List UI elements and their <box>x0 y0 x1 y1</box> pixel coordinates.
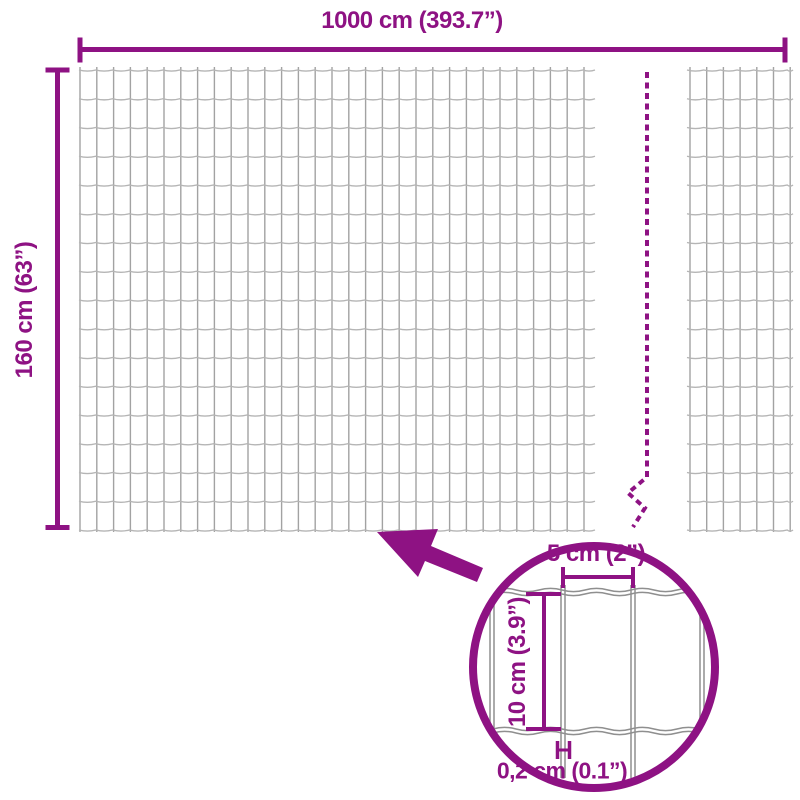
overall-width-label: 1000 cm (393.7”) <box>321 9 502 33</box>
overall-height-label: 160 cm (63”) <box>13 242 37 379</box>
main-mesh-panel <box>79 67 595 532</box>
detail-mesh-height-label: 10 cm (3.9”) <box>506 597 530 727</box>
width-dimension-line <box>80 38 785 63</box>
break-dashed-line <box>628 72 647 527</box>
detail-mesh-width-label: 5 cm (2”) <box>547 542 645 566</box>
right-mesh-panel <box>687 67 793 532</box>
detail-arrow-icon <box>377 529 483 582</box>
product-dimension-diagram: { "diagram": { "overall_width_label": "1… <box>0 0 800 800</box>
height-dimension-line <box>46 70 70 528</box>
detail-wire-thickness-label: 0,2 cm (0.1”) <box>497 760 627 783</box>
diagram-graphics <box>0 0 800 800</box>
diagram-stage: 1000 cm (393.7”) 160 cm (63”) 5 cm (2”) … <box>0 0 800 800</box>
